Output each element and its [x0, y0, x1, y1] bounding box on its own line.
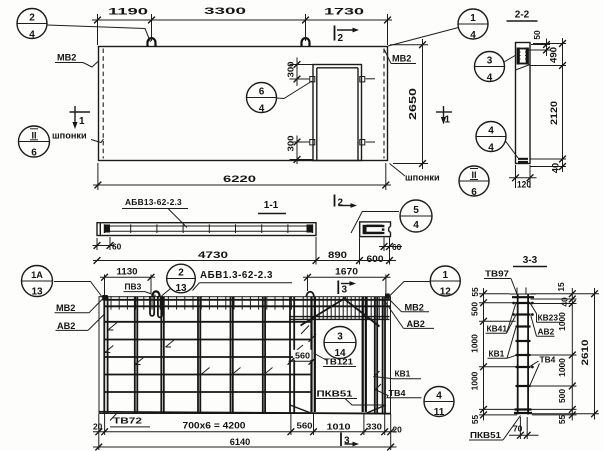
svg-text:3: 3	[344, 436, 350, 447]
svg-text:МВ2: МВ2	[57, 53, 76, 63]
svg-text:КВ23: КВ23	[538, 313, 559, 323]
svg-text:1190: 1190	[108, 7, 148, 17]
svg-text:3-3: 3-3	[523, 255, 538, 266]
svg-text:55: 55	[470, 415, 480, 425]
svg-text:55: 55	[557, 415, 567, 425]
svg-text:5: 5	[413, 205, 419, 216]
svg-text:ТВ4: ТВ4	[540, 355, 556, 365]
svg-text:330: 330	[366, 422, 382, 432]
svg-text:500: 500	[557, 389, 567, 403]
svg-text:ТВ4: ТВ4	[389, 388, 406, 398]
svg-text:1: 1	[443, 270, 449, 281]
svg-text:1: 1	[79, 116, 85, 127]
svg-text:1130: 1130	[117, 267, 138, 277]
svg-text:1670: 1670	[335, 267, 358, 277]
svg-text:АВ2: АВ2	[57, 321, 75, 331]
svg-text:300: 300	[286, 135, 296, 151]
svg-text:МВ2: МВ2	[56, 303, 75, 313]
svg-text:60: 60	[392, 242, 402, 252]
svg-text:шпонки: шпонки	[52, 131, 87, 141]
svg-text:II: II	[471, 170, 476, 180]
svg-text:1000: 1000	[470, 371, 480, 390]
svg-text:11: 11	[434, 407, 445, 418]
svg-text:6220: 6220	[223, 174, 256, 184]
svg-text:II: II	[31, 131, 36, 141]
svg-text:КВ1: КВ1	[395, 369, 411, 379]
svg-text:1000: 1000	[557, 312, 567, 331]
svg-text:13: 13	[175, 283, 187, 294]
svg-text:МВ2: МВ2	[405, 303, 424, 313]
svg-text:15: 15	[556, 282, 566, 292]
svg-text:МВ2: МВ2	[392, 54, 411, 64]
svg-text:4: 4	[488, 126, 494, 137]
svg-text:АБВ1.3-62-2.3: АБВ1.3-62-2.3	[200, 270, 273, 281]
svg-text:2610: 2610	[580, 340, 590, 366]
svg-text:1А: 1А	[31, 270, 43, 280]
svg-text:12: 12	[440, 287, 452, 298]
svg-text:490: 490	[549, 47, 559, 63]
svg-text:4: 4	[29, 30, 35, 41]
svg-text:4: 4	[259, 104, 265, 115]
svg-text:2: 2	[178, 268, 184, 279]
svg-text:120: 120	[517, 180, 531, 190]
svg-text:6: 6	[31, 148, 37, 159]
svg-text:2120: 2120	[549, 101, 559, 125]
svg-text:40: 40	[560, 297, 570, 307]
svg-text:6: 6	[259, 87, 265, 98]
svg-text:1730: 1730	[324, 7, 364, 17]
svg-text:4: 4	[488, 143, 494, 154]
svg-text:КВ1: КВ1	[489, 349, 505, 359]
svg-text:2: 2	[338, 33, 344, 44]
svg-text:КВ41: КВ41	[487, 324, 508, 334]
svg-text:ПВ3: ПВ3	[125, 282, 142, 292]
svg-text:4: 4	[413, 220, 419, 231]
svg-text:560: 560	[297, 421, 313, 431]
svg-text:ПКВ51: ПКВ51	[470, 430, 501, 440]
svg-text:1010: 1010	[327, 422, 351, 432]
svg-text:6: 6	[471, 187, 477, 198]
svg-text:1-1: 1-1	[264, 200, 279, 211]
svg-text:1000: 1000	[557, 358, 567, 377]
svg-text:4: 4	[470, 30, 476, 41]
svg-text:4: 4	[487, 73, 493, 84]
svg-text:4730: 4730	[198, 250, 228, 260]
svg-text:560: 560	[295, 351, 310, 361]
svg-text:600: 600	[367, 254, 384, 264]
svg-text:3: 3	[337, 332, 343, 343]
svg-text:70: 70	[513, 424, 523, 434]
svg-text:20: 20	[393, 425, 403, 435]
svg-text:1: 1	[470, 13, 476, 24]
svg-text:3300: 3300	[204, 6, 246, 16]
svg-text:ТВ121: ТВ121	[324, 357, 353, 367]
svg-text:60: 60	[112, 242, 122, 252]
svg-text:2: 2	[338, 198, 344, 209]
svg-text:1000: 1000	[470, 334, 480, 353]
svg-text:ПКВ51: ПКВ51	[317, 389, 353, 399]
svg-text:50: 50	[532, 30, 542, 40]
svg-text:40: 40	[551, 163, 561, 173]
svg-text:55: 55	[470, 287, 480, 297]
svg-text:500: 500	[470, 302, 480, 316]
svg-text:13: 13	[31, 287, 43, 298]
svg-text:890: 890	[328, 250, 347, 260]
svg-text:6140: 6140	[230, 437, 250, 447]
svg-text:шпонки: шпонки	[405, 173, 440, 183]
svg-text:ТВ97: ТВ97	[485, 269, 509, 279]
svg-text:2: 2	[29, 13, 35, 24]
svg-text:700x6 = 4200: 700x6 = 4200	[183, 421, 246, 431]
svg-text:ТВ72: ТВ72	[113, 416, 142, 426]
svg-text:3: 3	[342, 285, 348, 296]
svg-text:АБВ13-62-2.3: АБВ13-62-2.3	[125, 197, 182, 207]
svg-text:3: 3	[487, 56, 493, 67]
svg-text:300: 300	[286, 61, 296, 77]
svg-text:АВ2: АВ2	[407, 319, 425, 329]
svg-text:2-2: 2-2	[515, 10, 530, 21]
svg-text:1: 1	[445, 115, 451, 126]
svg-text:20: 20	[93, 422, 103, 432]
svg-text:АВ2: АВ2	[538, 327, 555, 337]
svg-text:4: 4	[436, 391, 442, 402]
svg-text:2650: 2650	[408, 87, 419, 120]
